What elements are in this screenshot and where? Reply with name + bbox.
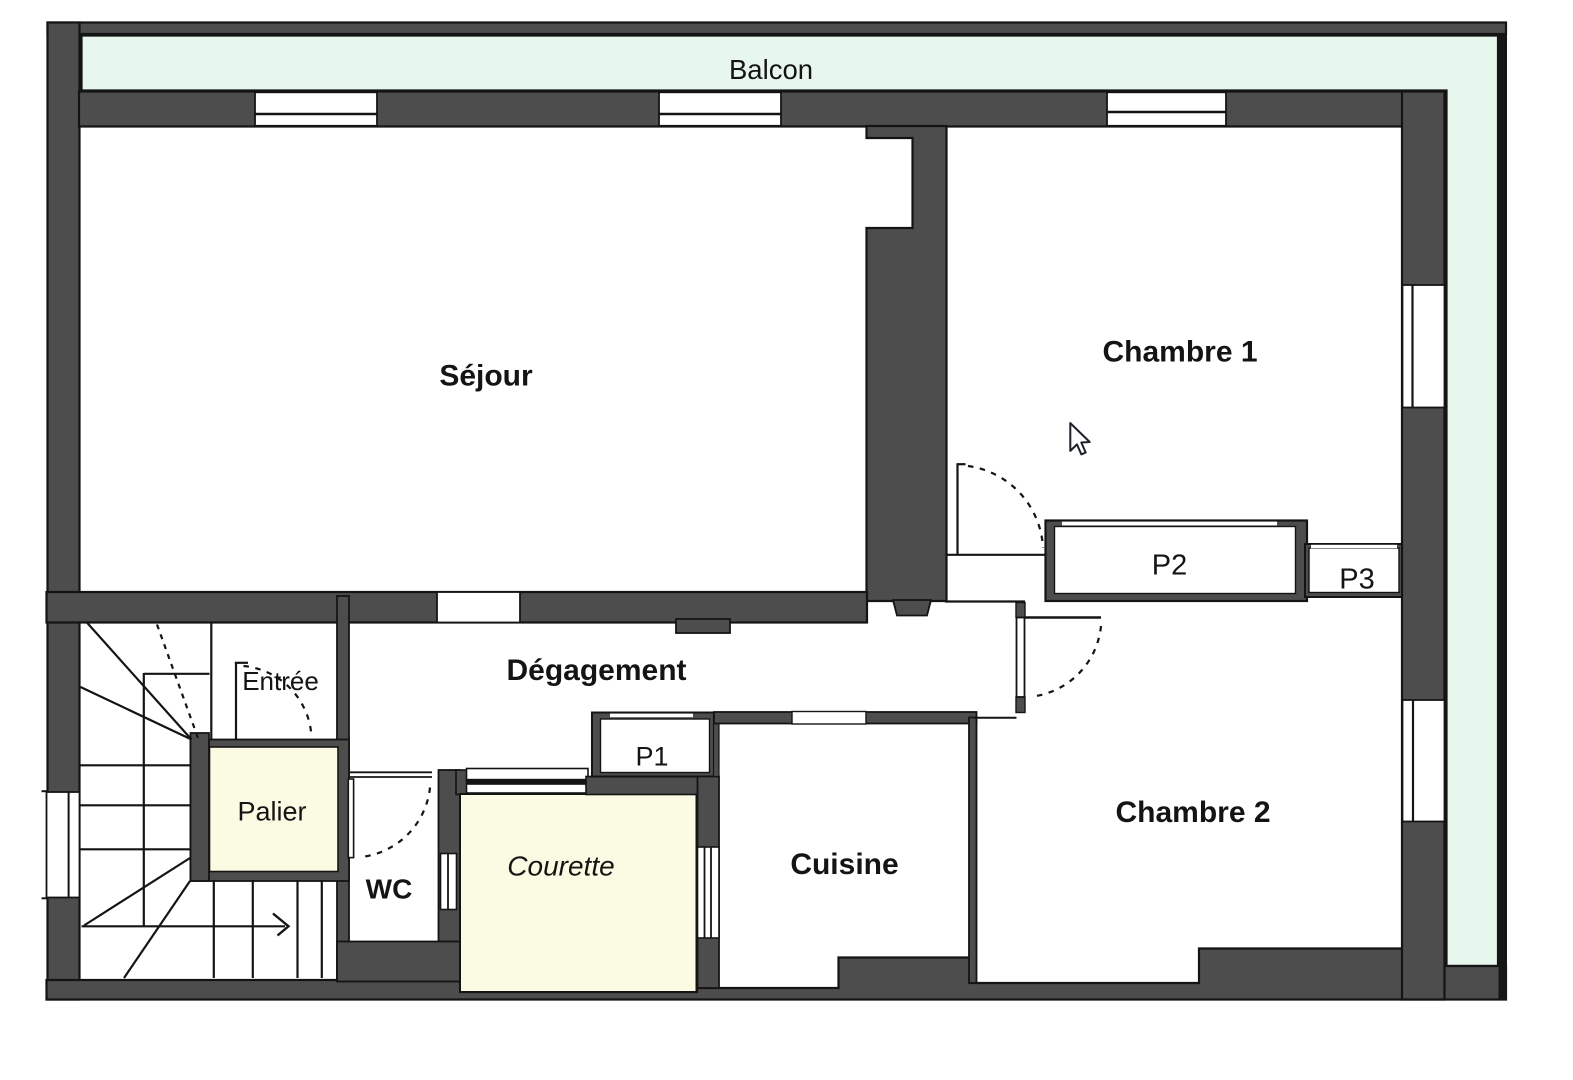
- svg-text:P3: P3: [1339, 564, 1374, 596]
- svg-text:Courette: Courette: [507, 851, 614, 882]
- svg-text:Dégagement: Dégagement: [506, 654, 686, 687]
- svg-text:P1: P1: [635, 742, 668, 772]
- svg-text:Chambre 2: Chambre 2: [1115, 796, 1270, 829]
- svg-text:WC: WC: [366, 874, 413, 905]
- svg-text:Séjour: Séjour: [439, 360, 533, 393]
- svg-text:Palier: Palier: [237, 797, 306, 827]
- svg-text:Cuisine: Cuisine: [790, 848, 898, 881]
- svg-text:Entrée: Entrée: [242, 666, 319, 696]
- svg-text:P2: P2: [1152, 550, 1187, 582]
- svg-text:Balcon: Balcon: [729, 54, 813, 85]
- svg-text:Chambre 1: Chambre 1: [1102, 336, 1257, 369]
